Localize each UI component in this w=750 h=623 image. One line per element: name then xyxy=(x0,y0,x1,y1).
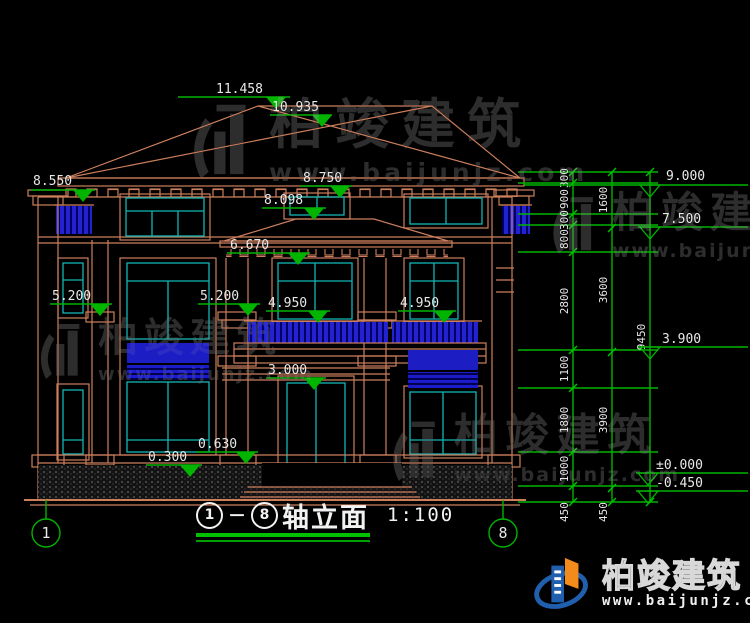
watermark: 柏竣建筑 www.baijunjz.com xyxy=(548,192,750,264)
level-label: 4.950 xyxy=(268,296,307,311)
company-name: 柏竣建筑 xyxy=(602,559,750,594)
watermark-logo-icon xyxy=(548,192,600,264)
window-2f-left xyxy=(120,194,210,240)
watermark-site: www.baijunjz.com xyxy=(98,366,314,384)
watermark-brand: 柏竣建筑 xyxy=(612,192,750,234)
title-axis-bubble-end: 8 xyxy=(251,502,278,529)
level-label: 9.000 xyxy=(666,169,705,184)
watermark-brand: 柏竣建筑 xyxy=(269,98,588,152)
watermark-brand: 柏竣建筑 xyxy=(98,318,314,358)
title-underline-thin xyxy=(196,540,370,542)
balcony-railing-right xyxy=(392,322,478,343)
watermark-brand: 柏竣建筑 xyxy=(454,414,680,458)
company-website: www.baijunjz.com xyxy=(602,593,750,609)
company-logo-icon xyxy=(532,554,594,614)
dim-value: 9450 xyxy=(635,324,648,351)
drawing-title: 轴立面 xyxy=(282,496,369,535)
right-balcony-railing xyxy=(502,206,530,234)
level-label: 4.950 xyxy=(400,296,439,311)
level-label: 0.300 xyxy=(148,450,187,465)
right-shutter-slats xyxy=(408,372,478,388)
level-label: 5.200 xyxy=(52,289,91,304)
level-label: 5.200 xyxy=(200,289,239,304)
level-label: 6.670 xyxy=(230,238,269,253)
level-label: 8.550 xyxy=(33,174,72,189)
watermark: 柏竣建筑 www.baijunjz.com xyxy=(388,414,680,494)
watermark: 柏竣建筑 www.baijunjz.com xyxy=(36,318,314,390)
watermark-site: www.baijunjz.com xyxy=(269,160,588,185)
watermark-logo-icon xyxy=(36,318,86,390)
axis-number: 1 xyxy=(41,524,50,542)
cad-elevation-drawing: 11.458 10.935 8.550 8.750 8.098 6.670 5.… xyxy=(0,0,750,623)
dim-value: 1100 xyxy=(558,356,571,383)
dim-value: 2800 xyxy=(558,288,571,315)
drawing-title-block: 1 － 8 轴立面 1:100 xyxy=(196,500,454,542)
level-label: 0.630 xyxy=(198,437,237,452)
company-logo: 柏竣建筑 www.baijunjz.com xyxy=(532,554,750,614)
level-label: 3.900 xyxy=(662,332,701,347)
title-axis-separator: － xyxy=(228,502,246,528)
watermark: 柏竣建筑 www.baijunjz.com xyxy=(185,98,588,192)
left-balcony-railing xyxy=(56,206,92,234)
watermark-site: www.baijunjz.com xyxy=(454,466,680,485)
title-axis-bubble-start: 1 xyxy=(196,502,223,529)
level-label: 8.098 xyxy=(264,193,303,208)
window-2f-right xyxy=(404,194,488,228)
window-side-lower xyxy=(57,384,89,460)
level-label: 11.458 xyxy=(216,82,263,97)
right-shutter-solid xyxy=(408,350,478,370)
window-balcony-right xyxy=(404,258,464,322)
watermark-logo-icon xyxy=(185,98,257,192)
watermark-site: www.baijunjz.com xyxy=(612,242,750,261)
watermark-logo-icon xyxy=(388,414,442,494)
axis-number: 8 xyxy=(498,524,507,542)
drawing-scale: 1:100 xyxy=(387,504,454,526)
dim-value: 450 xyxy=(558,502,571,522)
dim-value: 450 xyxy=(597,502,610,522)
window-side-upper xyxy=(58,258,88,318)
dim-value: 3600 xyxy=(597,277,610,304)
